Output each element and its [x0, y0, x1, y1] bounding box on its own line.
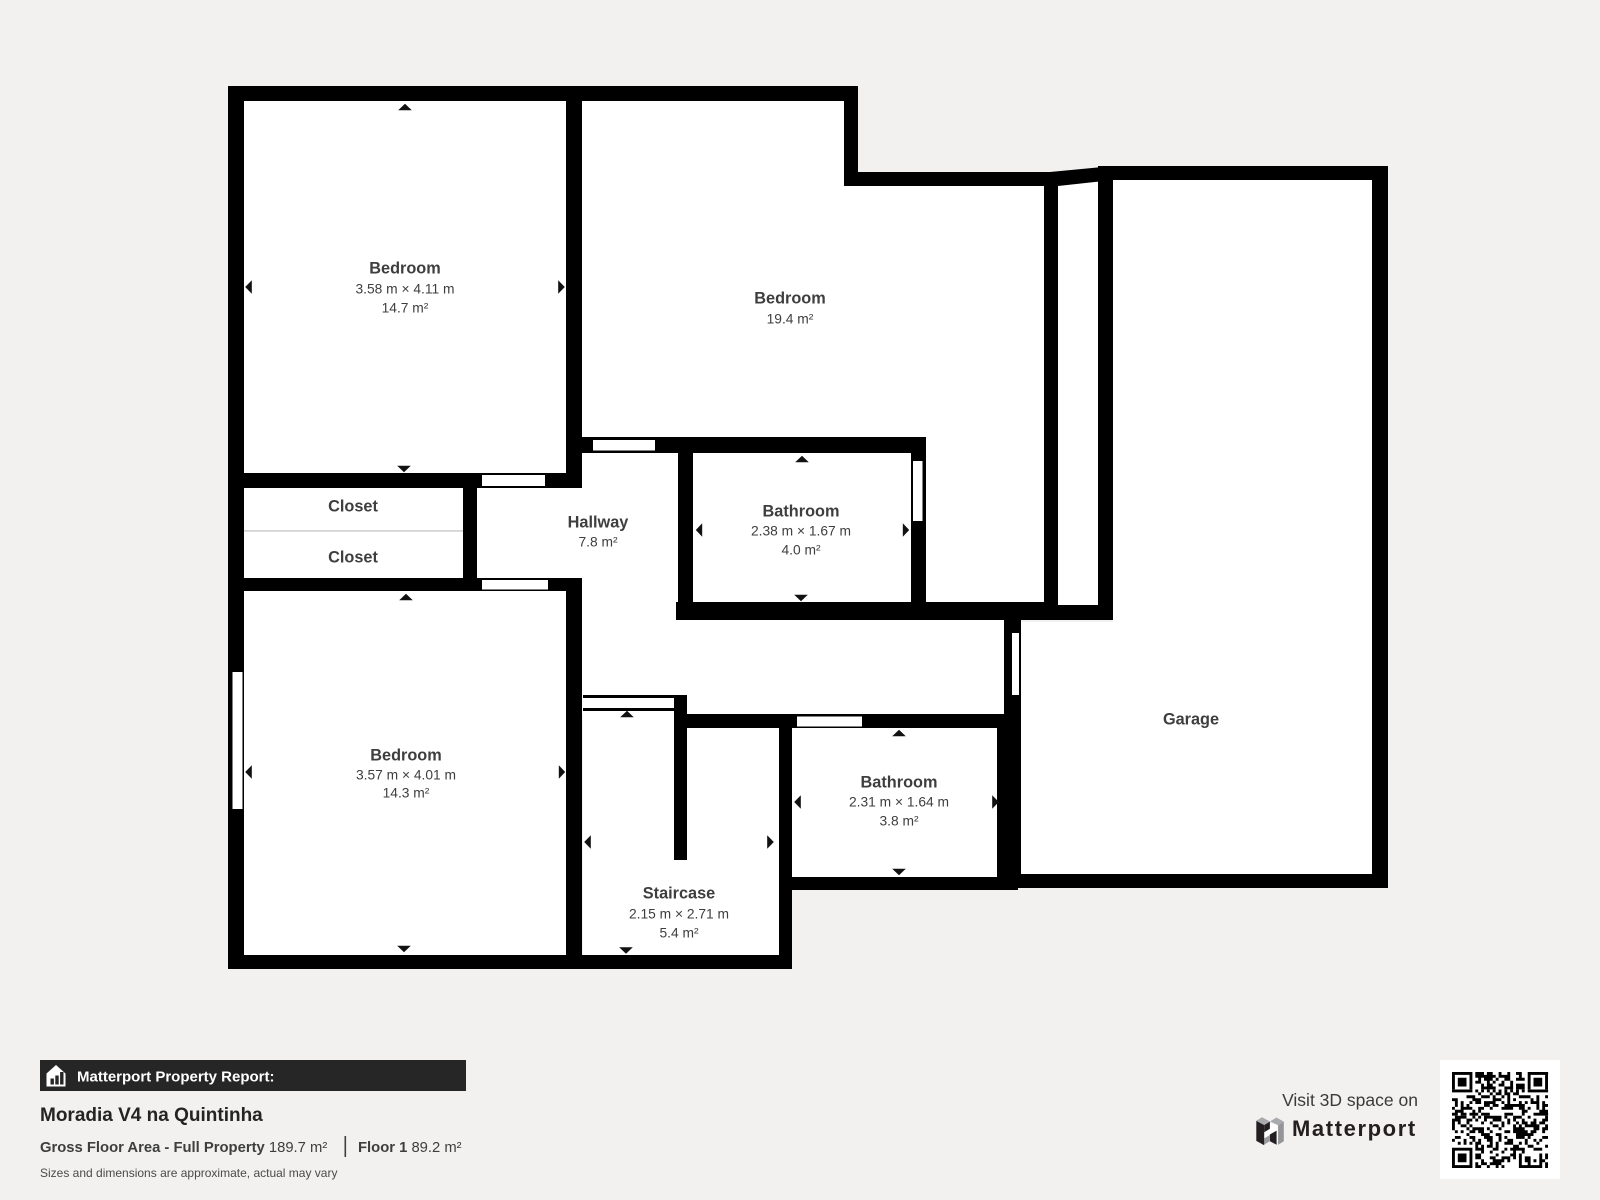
- svg-text:3.57 m × 4.01 m: 3.57 m × 4.01 m: [356, 768, 456, 783]
- svg-text:Garage: Garage: [1163, 711, 1219, 729]
- svg-text:19.4 m²: 19.4 m²: [767, 312, 814, 327]
- svg-text:Bedroom: Bedroom: [754, 290, 825, 308]
- svg-text:Matterport: Matterport: [1292, 1116, 1417, 1141]
- svg-text:Staircase: Staircase: [643, 885, 715, 903]
- svg-text:Matterport Property Report:: Matterport Property Report:: [77, 1069, 275, 1086]
- svg-text:14.3 m²: 14.3 m²: [383, 786, 430, 801]
- svg-text:7.8 m²: 7.8 m²: [578, 535, 618, 550]
- svg-text:Bathroom: Bathroom: [861, 774, 938, 792]
- svg-text:4.0 m²: 4.0 m²: [781, 543, 821, 558]
- svg-text:Visit 3D space on: Visit 3D space on: [1282, 1090, 1418, 1110]
- svg-text:Bedroom: Bedroom: [370, 747, 441, 765]
- svg-text:Closet: Closet: [328, 549, 378, 567]
- svg-text:2.15 m × 2.71 m: 2.15 m × 2.71 m: [629, 907, 729, 922]
- svg-text:Closet: Closet: [328, 498, 378, 516]
- svg-text:Gross Floor Area - Full Proper: Gross Floor Area - Full Property 189.7 m…: [40, 1140, 327, 1156]
- svg-text:14.7 m²: 14.7 m²: [382, 301, 429, 316]
- svg-text:5.4 m²: 5.4 m²: [659, 926, 699, 941]
- svg-text:3.8 m²: 3.8 m²: [879, 814, 919, 829]
- svg-text:Moradia V4 na Quintinha: Moradia V4 na Quintinha: [40, 1105, 263, 1126]
- svg-text:Sizes and dimensions are appro: Sizes and dimensions are approximate, ac…: [40, 1166, 337, 1180]
- svg-text:3.58 m × 4.11 m: 3.58 m × 4.11 m: [355, 282, 454, 297]
- svg-text:Floor 1 89.2 m²: Floor 1 89.2 m²: [358, 1140, 462, 1156]
- svg-text:2.31 m × 1.64 m: 2.31 m × 1.64 m: [849, 795, 949, 810]
- svg-text:Hallway: Hallway: [568, 514, 629, 532]
- svg-text:Bathroom: Bathroom: [763, 503, 840, 521]
- svg-text:2.38 m × 1.67 m: 2.38 m × 1.67 m: [751, 524, 851, 539]
- svg-text:Bedroom: Bedroom: [369, 260, 440, 278]
